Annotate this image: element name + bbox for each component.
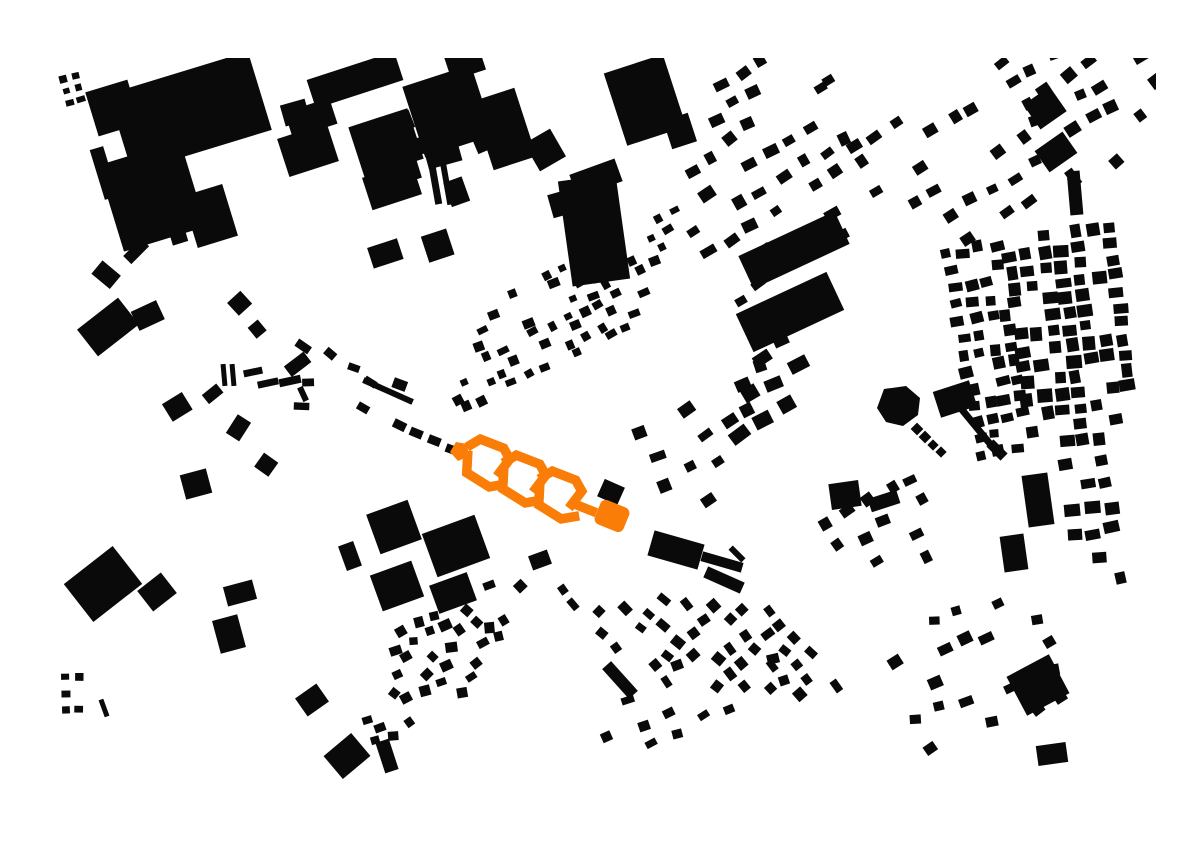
building-footprint: [1121, 363, 1133, 378]
building-footprint: [1014, 390, 1027, 402]
building-footprint: [1040, 262, 1052, 273]
building-footprint: [1076, 304, 1093, 318]
building-footprint: [1033, 358, 1050, 372]
building-footprint: [1070, 241, 1085, 253]
building-footprint: [1037, 230, 1049, 241]
building-footprint: [1008, 282, 1021, 296]
building-footprint: [1119, 350, 1132, 361]
building-footprint: [1066, 337, 1080, 352]
building-footprint: [445, 642, 458, 654]
building-footprint: [1103, 222, 1115, 233]
building-footprint: [1062, 325, 1077, 337]
building-footprint: [909, 714, 921, 724]
building-footprint: [973, 330, 984, 341]
building-footprint: [75, 673, 83, 681]
building-footprint: [1099, 348, 1115, 362]
building-footprint: [985, 296, 995, 306]
figure-ground-site-plan: [0, 0, 1191, 842]
building-footprint: [1003, 323, 1017, 336]
building-footprint: [1066, 355, 1083, 369]
building-footprint: [1053, 245, 1069, 258]
figure-ground-map: [0, 0, 1191, 842]
building-footprint: [74, 706, 83, 713]
building-footprint: [61, 690, 70, 697]
building-footprint: [1054, 260, 1068, 274]
building-footprint: [828, 480, 861, 510]
building-footprint: [1007, 296, 1022, 308]
building-footprint: [958, 333, 971, 343]
building-footprint: [1071, 387, 1086, 399]
building-footprint: [1108, 287, 1123, 298]
building-footprint: [1068, 529, 1083, 541]
building-footprint: [1031, 614, 1043, 625]
building-footprint: [1030, 327, 1043, 342]
building-footprint: [1020, 266, 1035, 278]
building-footprint: [1069, 224, 1081, 239]
building-footprint: [302, 378, 314, 386]
building-footprint: [1073, 418, 1087, 430]
building-footprint: [999, 309, 1011, 322]
building-footprint: [1048, 325, 1060, 337]
building-footprint: [1011, 444, 1024, 454]
building-footprint: [1082, 336, 1096, 351]
building-footprint: [61, 674, 69, 680]
building-footprint: [388, 731, 399, 741]
building-footprint: [989, 429, 999, 438]
building-footprint: [1055, 387, 1071, 402]
building-footprint: [1074, 274, 1086, 286]
building-footprint: [1037, 388, 1053, 403]
building-footprint: [1060, 435, 1076, 448]
building-footprint: [1063, 306, 1077, 319]
building-footprint: [1000, 534, 1029, 573]
building-footprint: [971, 239, 983, 252]
building-footprint: [1049, 341, 1062, 354]
building-footprint: [456, 687, 468, 699]
building-footprint: [1075, 433, 1090, 447]
building-footprint: [1027, 281, 1038, 291]
highlighted-building: [577, 505, 592, 511]
building-footprint: [1041, 405, 1055, 420]
building-footprint: [1113, 303, 1129, 314]
building-footprint: [1075, 288, 1090, 302]
building-footprint: [62, 706, 70, 713]
building-footprint: [1042, 291, 1058, 304]
building-footprint: [1090, 399, 1103, 411]
building-footprint: [929, 616, 940, 624]
building-footprint: [1057, 291, 1072, 305]
building-footprint: [1104, 501, 1120, 515]
building-footprint: [992, 356, 1006, 370]
building-footprint: [965, 297, 979, 308]
building-footprint: [1106, 381, 1120, 393]
building-footprint: [948, 282, 963, 292]
building-footprint: [1055, 372, 1066, 384]
building-footprint: [1080, 320, 1091, 330]
building-footprint: [1058, 458, 1074, 471]
building-footprint: [409, 637, 418, 645]
building-footprint: [294, 402, 310, 410]
building-footprint: [1036, 742, 1068, 766]
building-footprint: [955, 249, 969, 259]
building-footprint: [1114, 316, 1128, 326]
building-footprint: [1086, 222, 1101, 237]
building-footprint: [484, 622, 495, 634]
building-footprint: [1116, 334, 1128, 347]
building-footprint: [1106, 255, 1120, 267]
building-footprint: [991, 259, 1004, 270]
building-footprint: [1074, 404, 1087, 414]
building-footprint: [1038, 245, 1052, 260]
building-footprint: [1092, 432, 1105, 446]
building-footprint: [1099, 333, 1113, 347]
building-footprint: [1074, 257, 1086, 268]
building-footprint: [1092, 552, 1107, 564]
building-footprint: [985, 395, 998, 408]
building-footprint: [1064, 503, 1081, 517]
building-footprint: [1103, 237, 1117, 248]
building-footprint: [1018, 247, 1031, 261]
building-footprint: [958, 350, 969, 362]
building-footprint: [1044, 308, 1061, 321]
building-footprint: [1055, 405, 1070, 416]
building-footprint: [1026, 426, 1039, 439]
building-footprint: [988, 310, 1000, 321]
building-footprint: [1092, 271, 1108, 285]
building-footprint: [1084, 500, 1101, 514]
building-footprint: [1005, 342, 1018, 352]
building-footprint: [990, 344, 1001, 356]
building-footprint: [1008, 353, 1020, 366]
building-footprint: [1006, 266, 1018, 281]
